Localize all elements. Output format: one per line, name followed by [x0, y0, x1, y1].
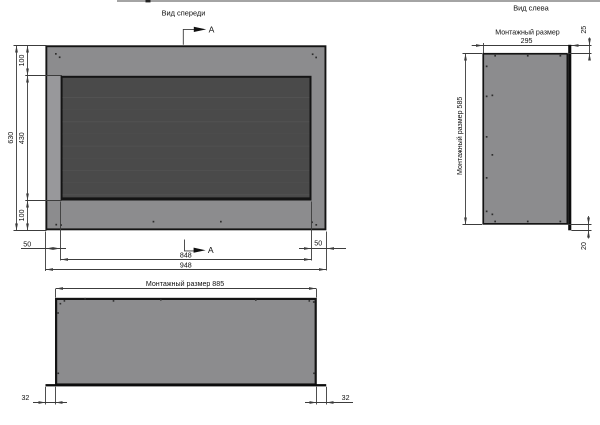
- svg-text:Монтажный размер: Монтажный размер: [495, 29, 560, 37]
- svg-text:50: 50: [23, 240, 31, 248]
- svg-text:Вид спереди: Вид спереди: [162, 8, 206, 17]
- svg-text:Монтажный размер 885: Монтажный размер 885: [146, 280, 224, 288]
- svg-text:Монтажный размер 585: Монтажный размер 585: [456, 97, 464, 175]
- svg-text:20: 20: [580, 242, 588, 250]
- svg-text:A: A: [209, 24, 215, 34]
- svg-text:A: A: [208, 245, 214, 255]
- svg-text:100: 100: [18, 209, 26, 221]
- svg-text:50: 50: [314, 240, 322, 248]
- svg-text:948: 948: [180, 262, 192, 270]
- svg-text:32: 32: [342, 394, 350, 402]
- svg-text:295: 295: [521, 37, 533, 45]
- svg-text:848: 848: [180, 251, 192, 259]
- svg-text:100: 100: [18, 55, 26, 67]
- svg-text:Вид слева: Вид слева: [513, 3, 549, 12]
- svg-text:430: 430: [18, 132, 26, 144]
- svg-text:25: 25: [580, 26, 588, 34]
- svg-text:630: 630: [7, 132, 15, 144]
- svg-text:32: 32: [21, 394, 29, 402]
